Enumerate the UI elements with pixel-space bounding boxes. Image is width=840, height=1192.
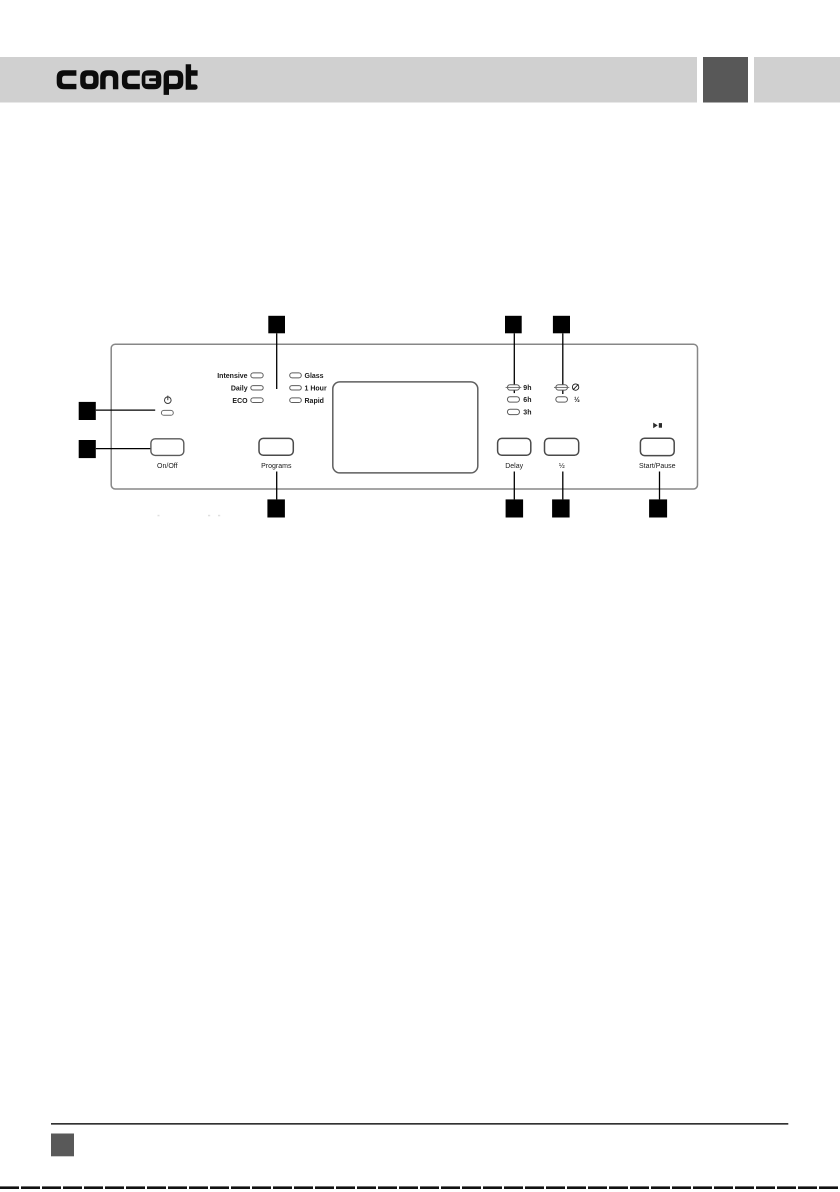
svg-text:3h: 3h	[523, 410, 531, 417]
svg-text:½: ½	[559, 462, 565, 470]
svg-text:Daily: Daily	[231, 386, 248, 393]
svg-text:On/Off: On/Off	[157, 463, 178, 470]
svg-text:9h: 9h	[523, 385, 531, 392]
svg-text:Rapid: Rapid	[305, 398, 324, 405]
svg-text:Intensive: Intensive	[217, 373, 247, 380]
svg-text:½: ½	[574, 396, 580, 404]
svg-text:ECO: ECO	[232, 398, 248, 405]
svg-text:Start/Pause: Start/Pause	[639, 463, 676, 470]
svg-text:1 Hour: 1 Hour	[305, 386, 327, 393]
svg-text:Programs: Programs	[261, 463, 292, 470]
svg-text:Delay: Delay	[505, 463, 523, 470]
svg-text:6h: 6h	[523, 397, 531, 404]
svg-text:Glass: Glass	[305, 373, 324, 380]
